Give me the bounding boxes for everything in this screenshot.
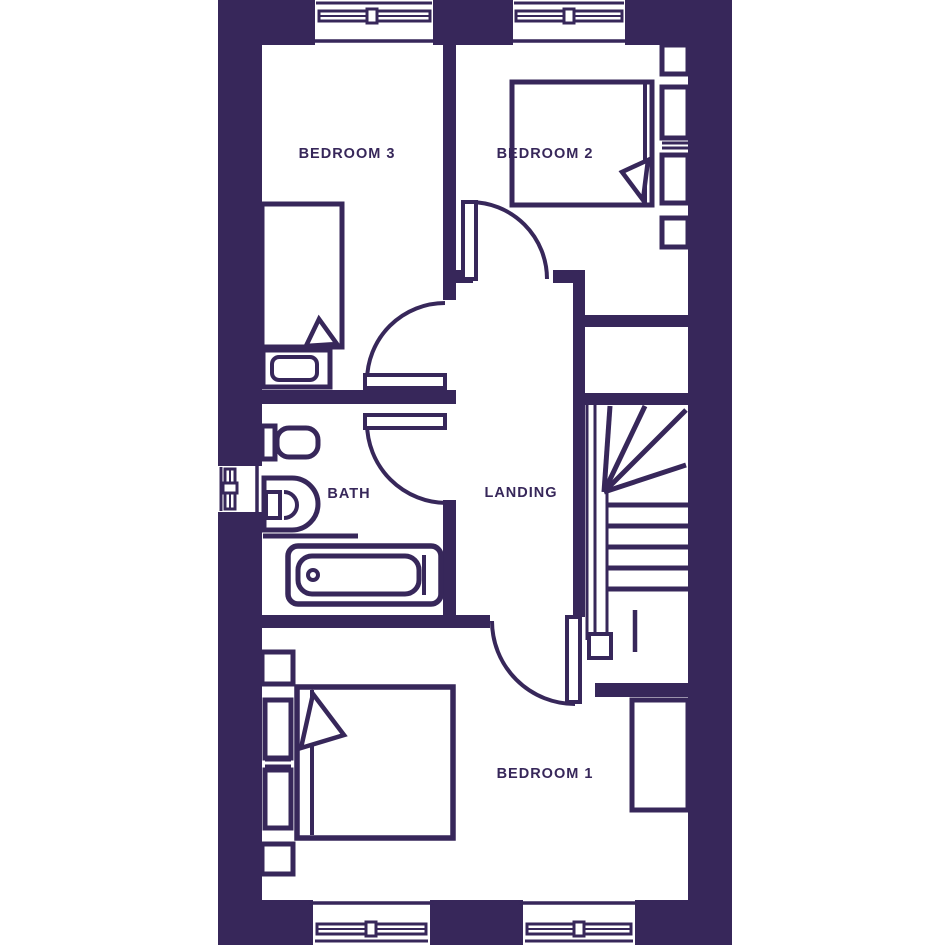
floor-plan: BEDROOM 3 BEDROOM 2 BATH LANDING BEDROOM… [0, 0, 945, 945]
door-bath [365, 415, 447, 503]
label-bath: BATH [327, 486, 370, 502]
label-bedroom-3: BEDROOM 3 [299, 146, 396, 162]
wardrobe [632, 700, 688, 810]
door-bedroom-2 [463, 202, 547, 279]
bedside-unit [262, 652, 293, 684]
toilet [262, 426, 318, 459]
pillow [272, 357, 317, 380]
window-bottom-left [307, 900, 436, 945]
wall-bed3-bath [262, 390, 456, 404]
window-top-left [311, 0, 437, 45]
wall-right [688, 0, 732, 945]
door-bedroom-1 [492, 617, 580, 704]
window-bath-left [218, 462, 262, 516]
wall-bed3-bed2 [443, 45, 456, 300]
stairs [587, 405, 688, 658]
label-landing: LANDING [484, 485, 557, 501]
wardrobe-section [265, 770, 291, 828]
single-bed [262, 204, 342, 347]
wall-bottom [218, 900, 732, 945]
wall-stairwell-top [585, 315, 688, 327]
wardrobe-section [662, 155, 688, 203]
bedside-unit [662, 45, 688, 74]
basin [264, 478, 318, 530]
wall-stairs-head [573, 393, 688, 405]
bedside-unit [662, 218, 688, 247]
wall-landing-stairs [573, 270, 585, 617]
bath-fixtures [262, 426, 441, 604]
wardrobe-section [265, 700, 291, 758]
bedside-unit [262, 844, 293, 874]
stair-newel [589, 634, 611, 658]
floor-plan-canvas: BEDROOM 3 BEDROOM 2 BATH LANDING BEDROOM… [0, 0, 945, 945]
window-bottom-right [517, 900, 641, 945]
drain [308, 570, 318, 580]
bedroom-3-fixtures [262, 204, 342, 387]
wardrobe-section [662, 87, 688, 138]
wall-top [218, 0, 732, 45]
bathtub [288, 546, 441, 604]
label-bedroom-1: BEDROOM 1 [497, 766, 594, 782]
door-bedroom-3 [365, 303, 445, 388]
wall-bath-bed1 [262, 615, 490, 628]
wall-under-stairs [595, 683, 688, 697]
wall-bath-landing [443, 500, 456, 628]
window-top-right [509, 0, 629, 45]
label-bedroom-2: BEDROOM 2 [497, 146, 594, 162]
